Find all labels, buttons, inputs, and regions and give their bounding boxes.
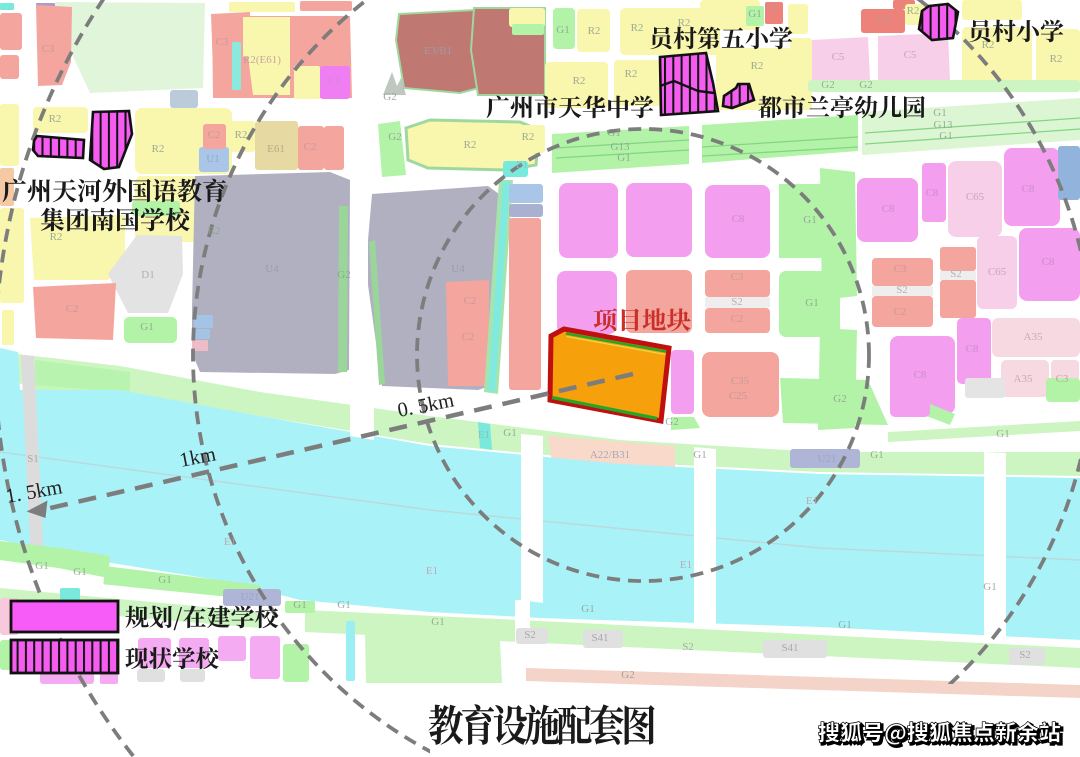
svg-text:E1: E1 [478, 429, 490, 441]
svg-text:G1: G1 [838, 619, 851, 631]
svg-text:C2: C2 [304, 141, 317, 153]
svg-text:U21: U21 [241, 591, 260, 603]
svg-text:C2: C2 [878, 14, 891, 26]
svg-text:R2: R2 [678, 17, 691, 29]
svg-text:G1: G1 [158, 574, 171, 586]
svg-text:C8: C8 [926, 187, 939, 199]
svg-text:C3: C3 [42, 43, 55, 55]
svg-text:C5: C5 [904, 49, 917, 61]
svg-text:C65: C65 [966, 191, 985, 203]
svg-text:E1: E1 [680, 559, 692, 571]
svg-text:G2: G2 [621, 669, 634, 681]
svg-text:R2: R2 [49, 113, 62, 125]
svg-text:E1: E1 [806, 495, 818, 507]
svg-text:G1: G1 [35, 560, 48, 572]
svg-text:G2: G2 [383, 91, 396, 103]
svg-text:G2: G2 [859, 79, 872, 91]
svg-text:U4: U4 [265, 263, 279, 275]
svg-text:C2: C2 [731, 313, 744, 325]
svg-text:R2: R2 [631, 22, 644, 34]
svg-text:C3: C3 [1056, 373, 1069, 385]
svg-text:S1: S1 [27, 453, 39, 465]
svg-text:C2: C2 [462, 331, 475, 343]
svg-text:C8: C8 [914, 369, 927, 381]
svg-text:G1: G1 [805, 297, 818, 309]
svg-text:E1: E1 [516, 159, 528, 171]
svg-text:R2(E61): R2(E61) [243, 54, 281, 66]
svg-text:G2: G2 [821, 79, 834, 91]
svg-text:G2: G2 [833, 393, 846, 405]
svg-text:A35: A35 [1014, 373, 1033, 385]
svg-text:C25: C25 [729, 390, 748, 402]
svg-text:G1: G1 [73, 566, 86, 578]
svg-text:D1: D1 [141, 269, 154, 281]
svg-text:R2: R2 [751, 60, 764, 72]
svg-text:G1: G1 [503, 427, 516, 439]
svg-text:G2: G2 [388, 131, 401, 143]
svg-text:G1: G1 [617, 152, 630, 164]
svg-text:S41: S41 [781, 642, 798, 654]
svg-text:C3: C3 [216, 36, 229, 48]
svg-text:C8: C8 [882, 203, 895, 215]
svg-text:G1: G1 [996, 428, 1009, 440]
svg-text:R2: R2 [50, 231, 63, 243]
svg-text:A22/B31: A22/B31 [590, 449, 630, 461]
svg-text:G1: G1 [337, 599, 350, 611]
svg-text:S2: S2 [731, 296, 743, 308]
svg-text:S2: S2 [896, 284, 908, 296]
svg-text:C3: C3 [731, 271, 744, 283]
svg-text:R2: R2 [152, 143, 165, 155]
svg-text:S2: S2 [524, 629, 536, 641]
svg-text:G1: G1 [581, 603, 594, 615]
svg-text:C2: C2 [765, 2, 778, 14]
svg-text:R2: R2 [235, 129, 248, 141]
svg-text:G1: G1 [870, 449, 883, 461]
svg-text:G1: G1 [693, 449, 706, 461]
svg-text:C2: C2 [894, 306, 907, 318]
svg-text:G1: G1 [140, 321, 153, 333]
svg-text:R2: R2 [208, 225, 221, 237]
svg-text:G2: G2 [665, 416, 678, 428]
svg-text:E1: E1 [426, 565, 438, 577]
svg-text:R2: R2 [625, 68, 638, 80]
svg-text:R2: R2 [573, 75, 586, 87]
svg-text:C8: C8 [1042, 256, 1055, 268]
svg-text:G1: G1 [607, 127, 620, 139]
svg-text:R2: R2 [907, 5, 920, 17]
svg-text:C1: C1 [328, 75, 341, 87]
svg-text:C5: C5 [832, 51, 845, 63]
svg-text:E1: E1 [224, 536, 236, 548]
svg-text:G1: G1 [556, 24, 569, 36]
svg-text:R2: R2 [588, 25, 601, 37]
svg-text:C2: C2 [66, 303, 79, 315]
svg-text:G1: G1 [933, 107, 946, 119]
svg-text:C8: C8 [966, 343, 979, 355]
svg-text:C35: C35 [731, 375, 750, 387]
svg-text:C8: C8 [732, 213, 745, 225]
svg-text:C65: C65 [988, 266, 1007, 278]
svg-text:G1: G1 [803, 214, 816, 226]
svg-text:S2: S2 [1019, 649, 1031, 661]
svg-text:U4: U4 [451, 263, 465, 275]
svg-text:E61: E61 [267, 143, 285, 155]
svg-text:R2: R2 [464, 139, 477, 151]
svg-text:G1: G1 [293, 599, 306, 611]
svg-text:C8: C8 [1022, 183, 1035, 195]
svg-text:G1: G1 [431, 616, 444, 628]
svg-text:R2: R2 [522, 131, 535, 143]
svg-text:U1: U1 [206, 153, 219, 165]
svg-text:S2: S2 [682, 641, 694, 653]
svg-text:A35: A35 [1024, 331, 1043, 343]
svg-text:S2: S2 [950, 268, 962, 280]
svg-text:G2: G2 [337, 269, 350, 281]
svg-text:S41: S41 [591, 632, 608, 644]
svg-text:R2: R2 [982, 39, 995, 51]
svg-text:G1: G1 [939, 130, 952, 142]
svg-text:R2: R2 [1050, 53, 1063, 65]
svg-text:G1: G1 [983, 581, 996, 593]
svg-text:C3: C3 [894, 263, 907, 275]
svg-text:G1: G1 [748, 8, 761, 20]
svg-text:C2: C2 [464, 295, 477, 307]
svg-text:U21: U21 [818, 453, 837, 465]
svg-text:E3/B1: E3/B1 [424, 45, 452, 57]
svg-text:C2: C2 [208, 129, 221, 141]
